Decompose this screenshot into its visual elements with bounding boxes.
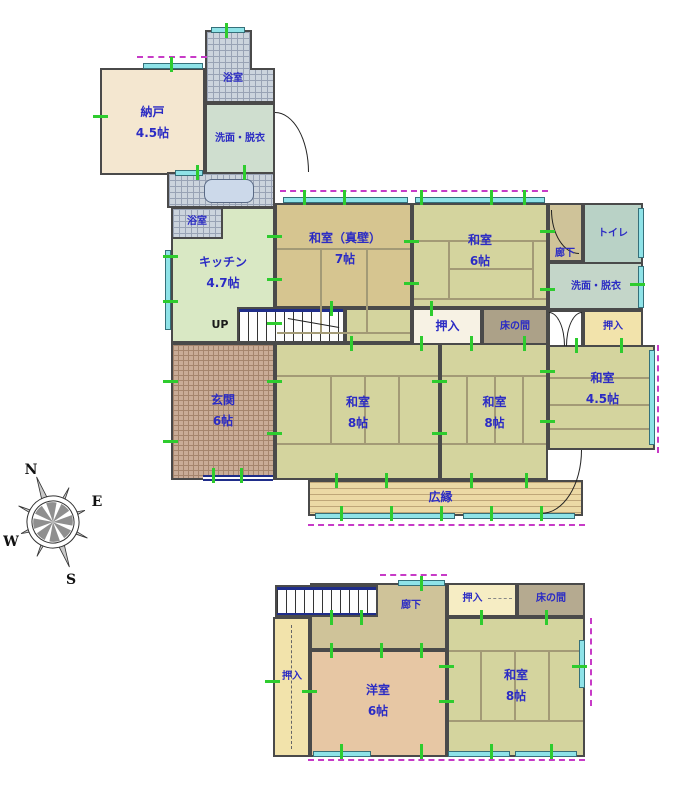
pillar-tick bbox=[93, 115, 108, 118]
pillar-tick bbox=[525, 473, 528, 488]
pillar-tick bbox=[267, 432, 282, 435]
eave-dashed-line bbox=[280, 190, 548, 192]
pillar-tick bbox=[225, 23, 228, 38]
label-stairs-up: UP bbox=[204, 315, 236, 334]
pillar-tick bbox=[420, 576, 423, 591]
pillar-tick bbox=[432, 380, 447, 383]
door-arc bbox=[275, 112, 309, 172]
pillar-tick bbox=[380, 643, 383, 658]
window bbox=[448, 751, 510, 757]
eave-dashed-line bbox=[308, 524, 585, 526]
label-washitsu8-right: 和室8帖 bbox=[437, 392, 552, 434]
eave-dashed-line bbox=[308, 759, 585, 761]
pillar-tick bbox=[540, 370, 555, 373]
label-entrance: 玄関6帖 bbox=[180, 390, 266, 432]
pillar-tick bbox=[630, 283, 645, 286]
label-tokonoma-f2: 床の間 bbox=[521, 590, 581, 608]
pillar-tick bbox=[243, 165, 246, 180]
pillar-tick bbox=[523, 190, 526, 205]
pillar-tick bbox=[267, 380, 282, 383]
tatami-line bbox=[449, 650, 583, 652]
pillar-tick bbox=[490, 744, 493, 759]
pillar-tick bbox=[340, 506, 343, 521]
label-washroom-annex: 洗面・脱衣 bbox=[206, 130, 274, 148]
pillar-tick bbox=[430, 301, 433, 316]
bath-top-notch bbox=[250, 30, 275, 70]
label-closet-center: 押入 bbox=[425, 316, 470, 337]
pillar-tick bbox=[420, 336, 423, 351]
pillar-tick bbox=[340, 744, 343, 759]
pillar-tick bbox=[540, 288, 555, 291]
window bbox=[638, 266, 644, 308]
pillar-tick bbox=[540, 506, 543, 521]
closet-door-dash bbox=[291, 625, 292, 749]
tatami-line bbox=[277, 443, 438, 445]
window bbox=[315, 513, 455, 519]
bathtub bbox=[204, 179, 254, 203]
pillar-tick bbox=[390, 506, 393, 521]
pillar-tick bbox=[240, 468, 243, 483]
pillar-tick bbox=[480, 610, 483, 625]
pillar-tick bbox=[439, 665, 454, 668]
tatami-filler bbox=[345, 308, 412, 343]
compass-north-label: N bbox=[25, 462, 38, 478]
compass-west-label: W bbox=[3, 534, 19, 550]
pillar-tick bbox=[330, 610, 333, 625]
pillar-tick bbox=[170, 57, 173, 72]
label-storage: 納戸4.5帖 bbox=[110, 102, 195, 144]
label-closet-left-f2: 押入 bbox=[274, 668, 310, 686]
pillar-tick bbox=[267, 322, 282, 325]
pillar-tick bbox=[163, 255, 178, 258]
label-tokonoma-f1: 床の間 bbox=[486, 318, 544, 336]
label-closet-top-f2: 押入 bbox=[450, 590, 495, 608]
window bbox=[211, 27, 245, 33]
pillar-tick bbox=[490, 506, 493, 521]
pillar-tick bbox=[490, 190, 493, 205]
tatami-line bbox=[442, 443, 546, 445]
label-hallway-f1: 廊下 bbox=[544, 245, 586, 263]
pillar-tick bbox=[439, 700, 454, 703]
window bbox=[638, 208, 644, 258]
pillar-tick bbox=[550, 744, 553, 759]
tatami-line bbox=[532, 240, 534, 298]
pillar-tick bbox=[620, 338, 623, 353]
window bbox=[515, 751, 577, 757]
pillar-tick bbox=[163, 300, 178, 303]
pillar-tick bbox=[545, 610, 548, 625]
pillar-tick bbox=[330, 643, 333, 658]
pillar-tick bbox=[267, 278, 282, 281]
compass-east-label: E bbox=[92, 494, 103, 510]
pillar-tick bbox=[420, 744, 423, 759]
label-kitchen: キッチン4.7帖 bbox=[180, 252, 266, 294]
window bbox=[143, 63, 203, 69]
eave-dashed-line bbox=[590, 618, 592, 706]
label-washitsu8-left: 和室8帖 bbox=[298, 392, 418, 434]
label-veranda: 広縁 bbox=[413, 487, 468, 508]
label-washitsu8-f2: 和室8帖 bbox=[473, 665, 559, 707]
pillar-tick bbox=[404, 240, 419, 243]
tatami-line bbox=[550, 428, 653, 430]
pillar-tick bbox=[420, 643, 423, 658]
pillar-tick bbox=[343, 190, 346, 205]
label-closet-right: 押入 bbox=[588, 318, 638, 336]
pillar-tick bbox=[335, 473, 338, 488]
label-washitsu6: 和室6帖 bbox=[435, 230, 525, 272]
label-western-room: 洋室6帖 bbox=[335, 680, 421, 722]
pillar-tick bbox=[420, 190, 423, 205]
label-toilet: トイレ bbox=[588, 225, 638, 243]
pillar-tick bbox=[572, 665, 587, 668]
pillar-tick bbox=[212, 468, 215, 483]
floor-plan-canvas: 納戸4.5帖 浴室 洗面・脱衣 浴室 キッチン4.7帖 和室（真壁）7帖 和室6… bbox=[0, 0, 685, 788]
tatami-line bbox=[277, 375, 438, 377]
window bbox=[165, 250, 171, 330]
label-hallway-f2: 廊下 bbox=[386, 597, 436, 615]
pillar-tick bbox=[470, 336, 473, 351]
pillar-tick bbox=[540, 230, 555, 233]
pillar-tick bbox=[575, 338, 578, 353]
eave-dashed-line bbox=[380, 574, 447, 576]
tatami-line bbox=[277, 332, 410, 334]
pillar-tick bbox=[350, 336, 353, 351]
pillar-tick bbox=[470, 473, 473, 488]
pillar-tick bbox=[404, 282, 419, 285]
pillar-tick bbox=[196, 165, 199, 180]
tatami-line bbox=[449, 720, 583, 722]
pillar-tick bbox=[303, 190, 306, 205]
pillar-tick bbox=[360, 610, 363, 625]
compass-south-label: S bbox=[66, 572, 76, 588]
pillar-tick bbox=[302, 690, 317, 693]
pillar-tick bbox=[385, 473, 388, 488]
compass-rose: N E S W bbox=[3, 458, 107, 592]
pillar-tick bbox=[330, 301, 333, 316]
label-bath-top: 浴室 bbox=[208, 70, 258, 88]
tatami-line bbox=[414, 298, 546, 300]
window bbox=[463, 513, 575, 519]
pillar-tick bbox=[163, 440, 178, 443]
label-bath-mid: 浴室 bbox=[174, 213, 220, 231]
pillar-tick bbox=[440, 506, 443, 521]
pillar-tick bbox=[163, 380, 178, 383]
label-washroom-f1: 洗面・脱衣 bbox=[563, 278, 629, 296]
window bbox=[579, 640, 585, 688]
label-washitsu45: 和室4.5帖 bbox=[555, 368, 650, 410]
eave-dashed-line bbox=[657, 345, 659, 453]
pillar-tick bbox=[267, 235, 282, 238]
pillar-tick bbox=[523, 336, 526, 351]
label-washitsu-shinkabe: 和室（真壁）7帖 bbox=[290, 228, 400, 270]
